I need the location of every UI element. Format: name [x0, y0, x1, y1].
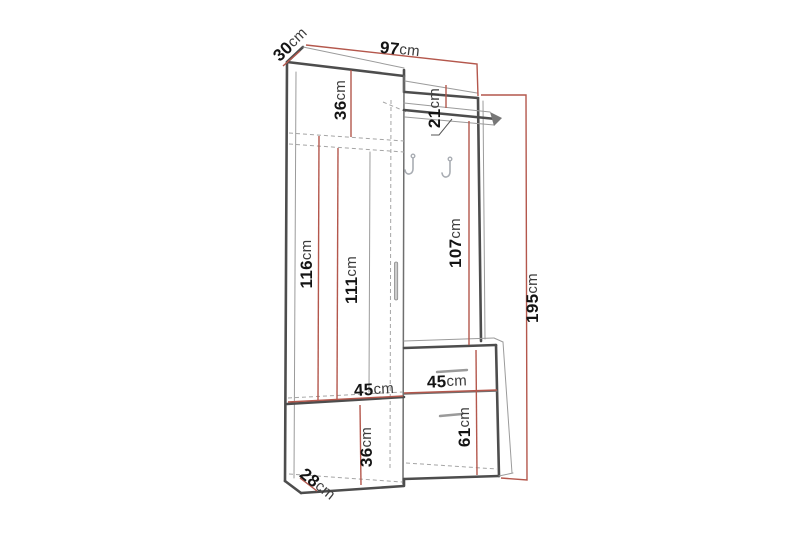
hidden-shelf-top — [289, 133, 404, 141]
hidden-shelf-bottom — [289, 144, 404, 152]
diagram-canvas: 30cm 97cm 36cm 21cm 116cm 111cm 107cm 19… — [0, 0, 800, 533]
dim-line-right-cabinet-height — [476, 350, 477, 475]
tall-right-edge — [403, 76, 404, 484]
dim-label-shelf-drop: 21cm — [425, 88, 444, 128]
cabinet-right-front-edge — [496, 345, 499, 476]
cabinet-bottom-side-edge — [499, 473, 513, 476]
base-depth-edge — [285, 481, 301, 493]
dim-label-right-cabinet-height: 61cm — [455, 407, 474, 447]
hidden-side-edge — [390, 100, 391, 470]
cabinet-bottom-edge — [404, 476, 499, 479]
dim-label-left-section-width: 45cm — [353, 378, 394, 399]
dim-label-panel-height: 107cm — [446, 218, 465, 268]
dim-label-bottom-door-height: 36cm — [357, 427, 376, 467]
cabinet-right-back-edge — [503, 342, 512, 473]
dim-label-left-door-height: 111cm — [342, 256, 361, 304]
panel-right-outer-edge — [483, 101, 485, 339]
dimension-diagram: 30cm 97cm 36cm 21cm 116cm 111cm 107cm 19… — [0, 0, 800, 533]
dim-label-total-width: 97cm — [379, 37, 421, 60]
dim-line-total-height — [481, 95, 527, 480]
panel-right-edge — [478, 98, 481, 341]
dim-label-left-inner-height: 116cm — [297, 240, 316, 289]
dim-line-left-door-height — [337, 148, 338, 399]
cabinet-top-front-edge — [404, 345, 496, 348]
door-edge-line — [369, 152, 370, 392]
coat-hook-icon — [405, 154, 415, 174]
left-front-edge — [285, 62, 287, 481]
dim-label-upper-section-height: 36cm — [331, 80, 350, 120]
hidden-cabinet-base — [406, 463, 497, 469]
wardrobe-door-handle — [395, 262, 398, 300]
dim-label-base-depth: 28cm — [296, 464, 339, 504]
dim-label-right-cabinet-width: 45cm — [427, 371, 468, 391]
dim-label-total-height: 195cm — [523, 273, 542, 323]
dim-line-left-inner-height — [318, 136, 319, 400]
coat-panel-outline — [404, 81, 502, 341]
cabinet-top-right-edge — [494, 338, 503, 342]
coat-hook-icon — [442, 157, 452, 177]
